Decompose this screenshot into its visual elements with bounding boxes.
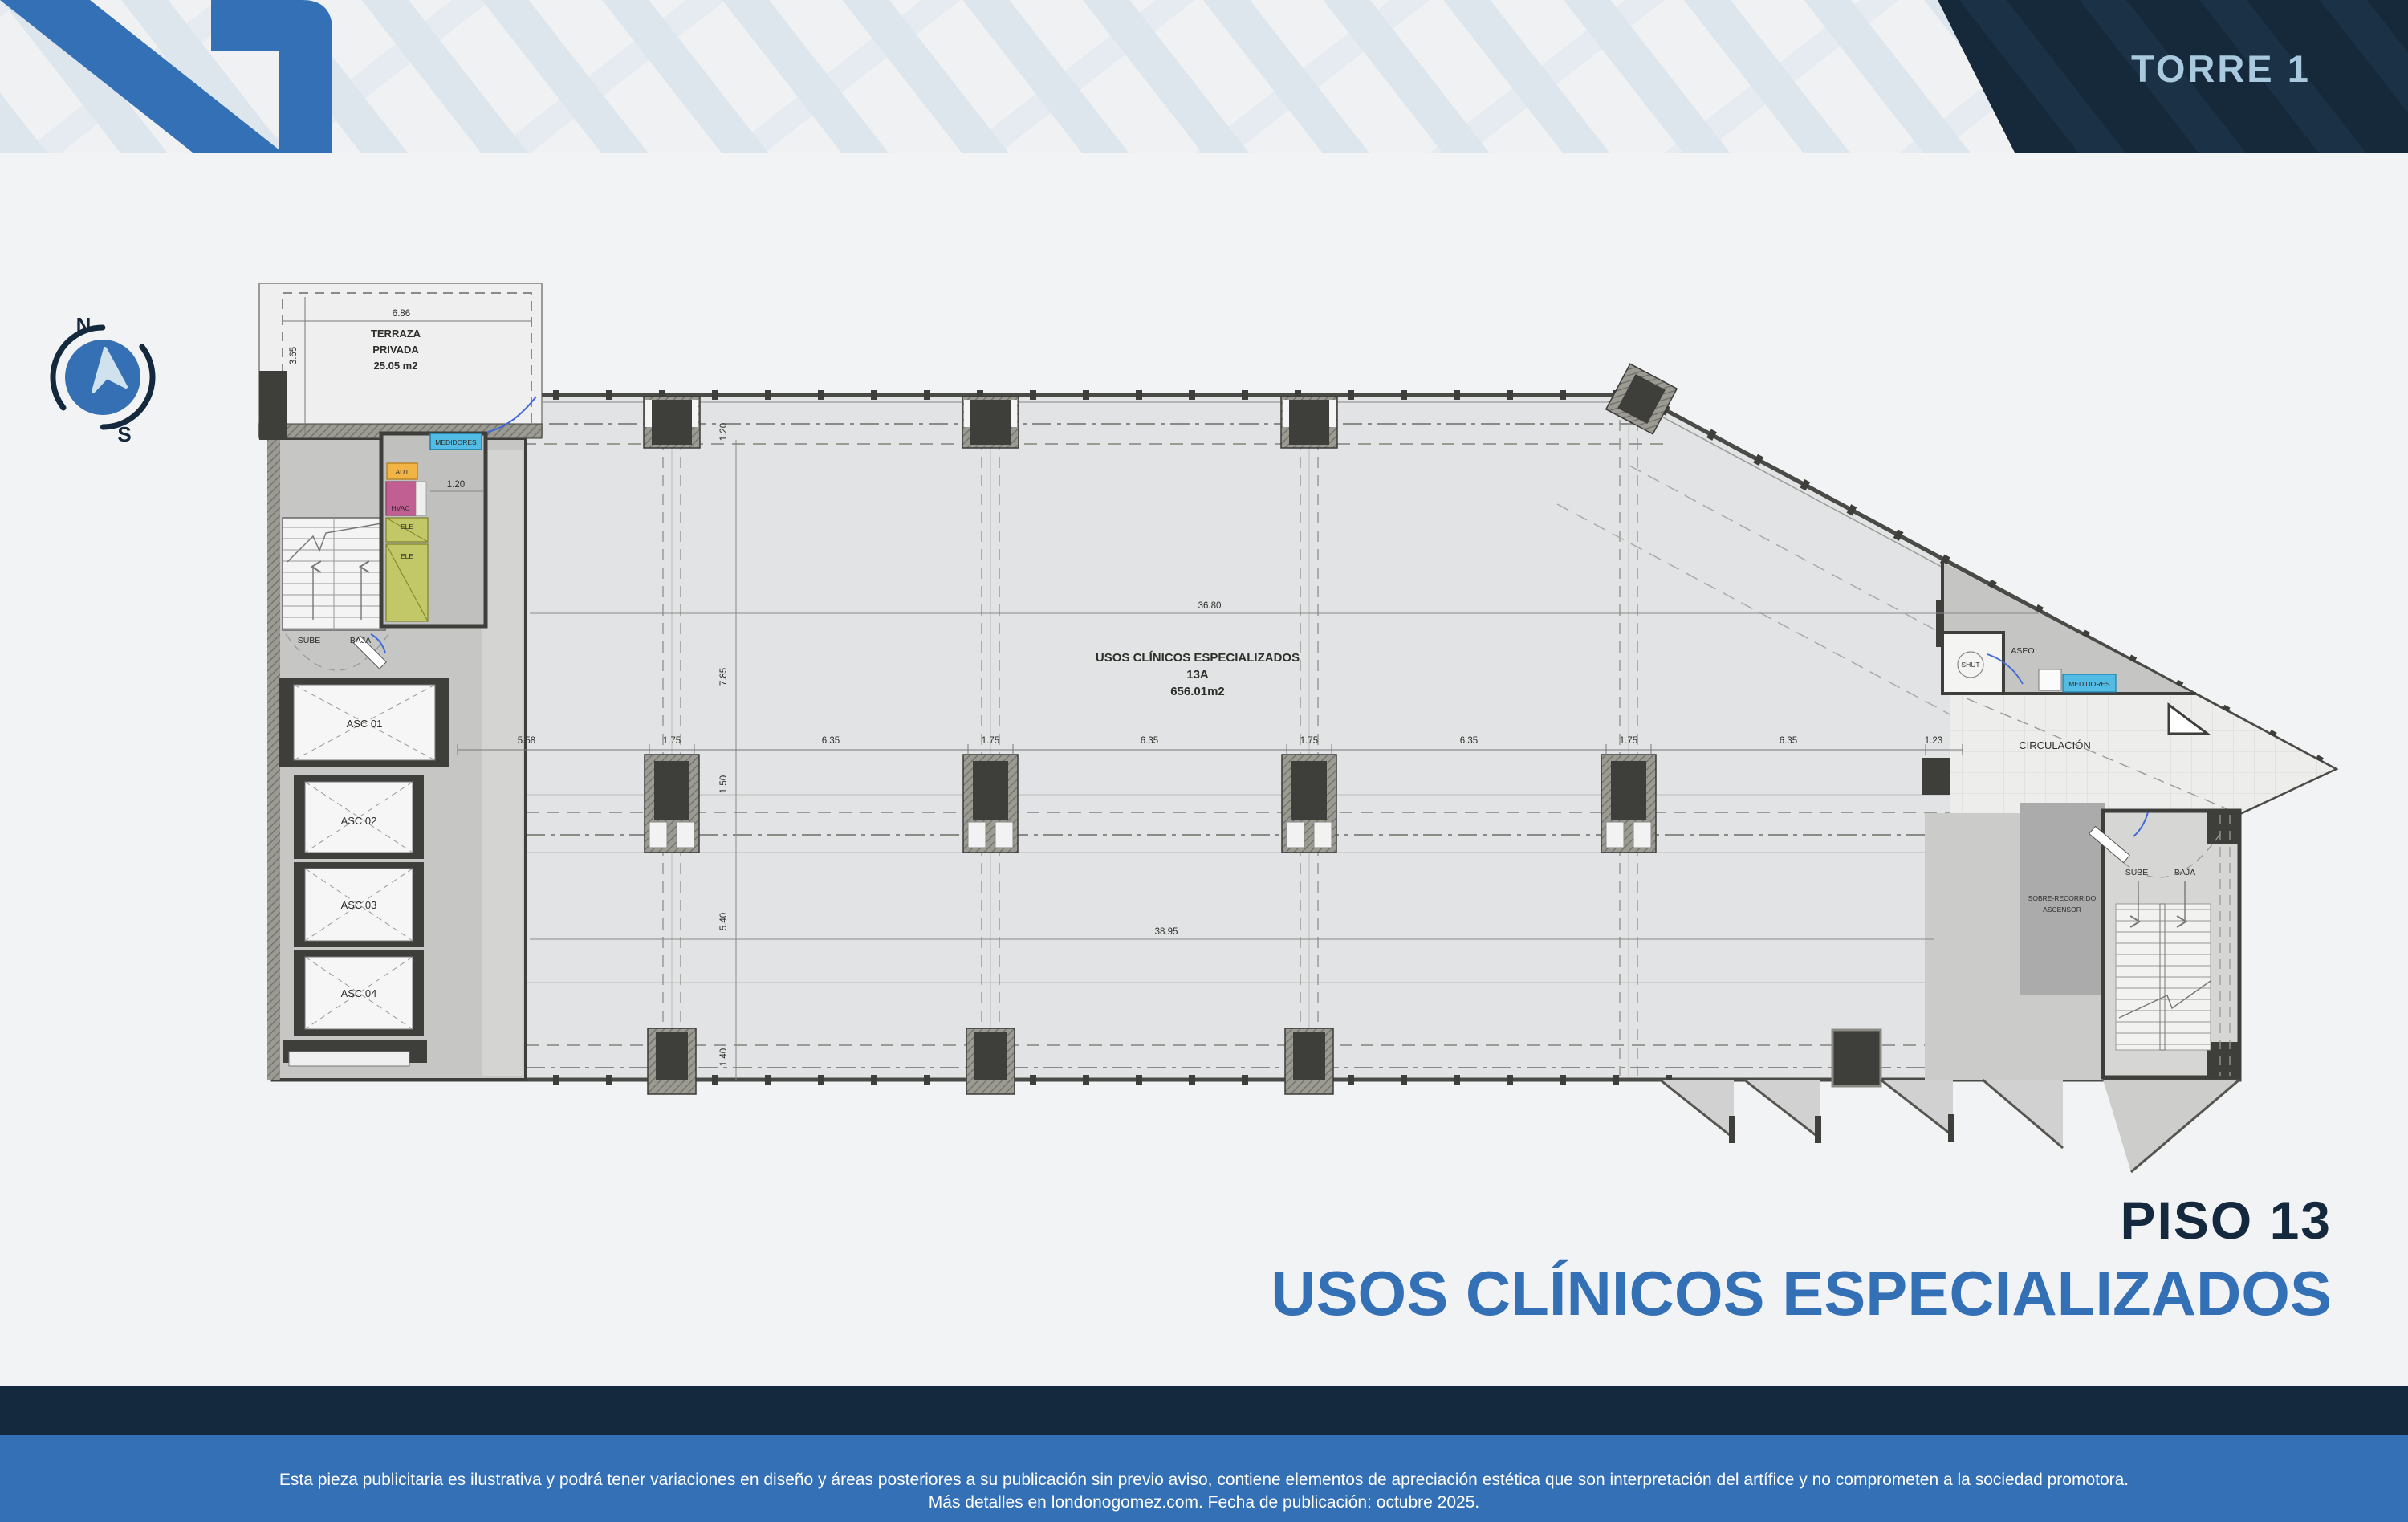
hvac-label: HVAC (392, 504, 410, 512)
circulacion-label: CIRCULACIÓN (2019, 739, 2091, 751)
aut-label: AUT (396, 468, 409, 476)
medidores-label: MEDIDORES (435, 438, 477, 446)
terraza-area-label: 25.05 m2 (374, 360, 418, 372)
main-space-unit: 13A (1186, 668, 1209, 682)
dim-label: 36.80 (1198, 601, 1222, 611)
tower-corner-banner: TORRE 1 (1838, 0, 2408, 153)
footer-line-2: Más detalles en londonogomez.com. Fecha … (40, 1491, 2368, 1514)
over-travel-label: ASCENSOR (2043, 905, 2081, 914)
floor-plan: 6.86 3.65 TERRAZA PRIVADA 25.05 m2 (249, 273, 2352, 1188)
elevator-label: ASC 01 (347, 718, 383, 730)
shut-label: SHUT (1961, 661, 1979, 669)
terraza-label: PRIVADA (372, 344, 419, 356)
compass-icon: N S (32, 297, 177, 466)
brand-logo-icon (0, 0, 385, 153)
main-space-area: 656.01m2 (1170, 685, 1225, 698)
dim-label: 1.75 (1620, 736, 1637, 746)
floor-title: PISO 13 (1271, 1190, 2332, 1251)
ele-label: ELE (401, 523, 413, 531)
compass-south-label: S (117, 422, 131, 446)
tower-label: TORRE 1 (2131, 47, 2311, 91)
dim-label: 1.50 (719, 775, 729, 793)
dim-label: 38.95 (1155, 927, 1178, 937)
terraza-privada: 6.86 3.65 TERRAZA PRIVADA 25.05 m2 (259, 283, 542, 440)
elevator-label: ASC 04 (341, 987, 377, 999)
compass-north-label: N (76, 313, 92, 337)
stair-down-label: BAJA (2174, 868, 2195, 877)
dim-label: 6.35 (1780, 736, 1797, 746)
dim-label: 1.20 (447, 480, 465, 490)
elevator-label: ASC 02 (341, 815, 377, 827)
dim-label: 3.65 (289, 347, 299, 364)
dim-label: 6.86 (393, 309, 410, 319)
dim-label: 5.58 (518, 736, 535, 746)
footer-navy-stripe (0, 1386, 2408, 1435)
dim-label: 6.35 (822, 736, 840, 746)
title-block: PISO 13 USOS CLÍNICOS ESPECIALIZADOS (1271, 1190, 2332, 1330)
medidores-right-label: MEDIDORES (2068, 680, 2110, 688)
elevator-label: ASC 03 (341, 899, 377, 911)
sawtooth-edge (1660, 1080, 2239, 1172)
right-stairs: SOBRE-RECORRIDO ASCENSOR SUBE BAJA (1925, 803, 2239, 1080)
footer-disclaimer: Esta pieza publicitaria es ilustrativa y… (0, 1435, 2408, 1522)
stair-down-label: BAJA (350, 636, 371, 645)
dim-label: 1.75 (663, 736, 681, 746)
use-title: USOS CLÍNICOS ESPECIALIZADOS (1271, 1257, 2332, 1330)
main-space-title: USOS CLÍNICOS ESPECIALIZADOS (1096, 651, 1300, 665)
over-travel-label: SOBRE-RECORRIDO (2028, 894, 2097, 902)
header-banner: TORRE 1 (0, 0, 2408, 153)
dim-label: 1.23 (1925, 736, 1942, 746)
service-shafts: MEDIDORES AUT HVAC ELE ELE 1.20 (381, 433, 486, 626)
dim-label: 1.75 (1300, 736, 1318, 746)
dim-label: 1.20 (719, 423, 729, 441)
right-zone: SHUT ASEO MEDIDORES CIRCULACIÓN (1942, 562, 2334, 813)
aseo-label: ASEO (2011, 646, 2034, 656)
terraza-label: TERRAZA (371, 328, 421, 340)
page: TORRE 1 N S (0, 0, 2408, 1522)
dim-label: 6.35 (1141, 736, 1158, 746)
stair-up-label: SUBE (2125, 868, 2149, 877)
dim-label: 1.75 (982, 736, 999, 746)
dim-label: 5.40 (719, 913, 729, 930)
ele-label: ELE (401, 552, 413, 560)
dim-label: 1.40 (719, 1048, 729, 1066)
dim-label: 7.85 (719, 668, 729, 686)
dim-label: 6.35 (1460, 736, 1478, 746)
stair-up-label: SUBE (298, 636, 321, 645)
footer-line-1: Esta pieza publicitaria es ilustrativa y… (40, 1469, 2368, 1491)
